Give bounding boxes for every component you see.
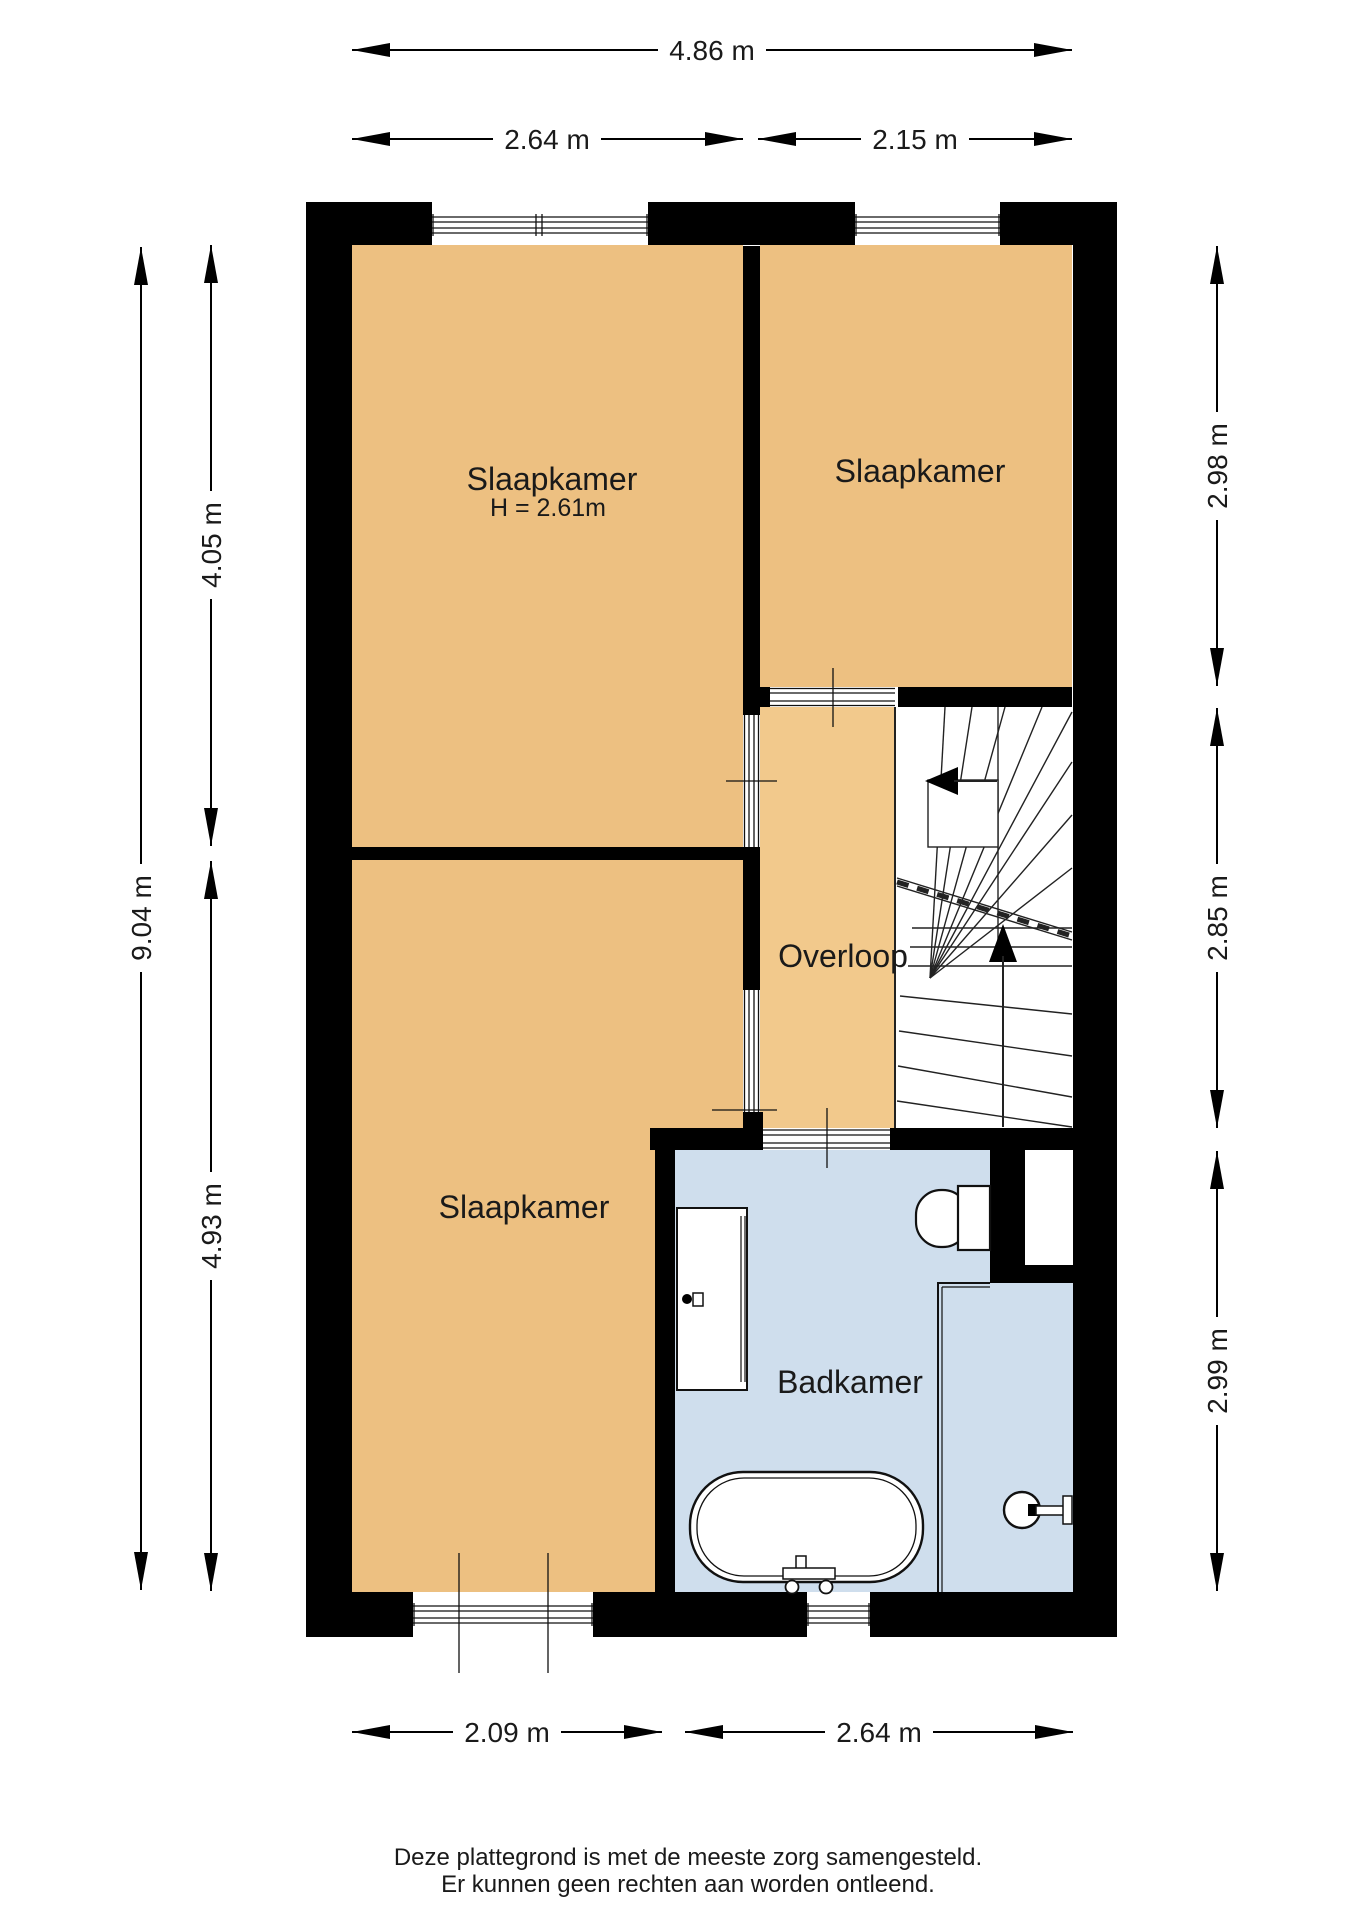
dim-label-left-total: 9.04 m <box>126 875 157 961</box>
dim-label-top-right-room: 2.15 m <box>872 124 958 155</box>
footer: Deze plattegrond is met de meeste zorg s… <box>394 1844 982 1898</box>
room-label-slaapkamer-bottom-left: Slaapkamer <box>439 1189 610 1225</box>
wall-middle-vertical-b <box>743 847 760 990</box>
dim-label-right-bottom: 2.99 m <box>1202 1328 1233 1414</box>
room-label-badkamer: Badkamer <box>777 1364 923 1400</box>
dim-label-left-lower: 4.93 m <box>196 1183 227 1269</box>
staircase <box>895 707 1072 1129</box>
bathtub <box>690 1472 923 1594</box>
room-height-label: H = 2.61m <box>490 494 606 522</box>
toilet <box>916 1186 990 1250</box>
wall-outer-top-a <box>306 202 432 245</box>
room-label-overloop: Overloop <box>778 938 908 974</box>
room-label-slaapkamer-top-left: Slaapkamer <box>467 461 638 497</box>
wall-outer-bottom-b <box>593 1592 807 1637</box>
dim-label-left-upper: 4.05 m <box>196 502 227 588</box>
wall-bedroom-divider <box>352 847 743 860</box>
room-slaapkamer-top-left-floor <box>352 245 743 847</box>
wall-toilet-nook <box>990 1150 1025 1283</box>
dim-label-right-top: 2.98 m <box>1202 423 1233 509</box>
wall-outer-top-c <box>1000 202 1117 245</box>
footer-line-1: Deze plattegrond is met de meeste zorg s… <box>394 1844 982 1871</box>
room-label-slaapkamer-top-right: Slaapkamer <box>835 453 1006 489</box>
wall-middle-vertical-a <box>743 246 760 715</box>
wall-outer-bottom-a <box>306 1592 413 1637</box>
wall-stairs-top <box>898 687 1072 707</box>
dim-label-bottom-left: 2.09 m <box>464 1717 550 1748</box>
dim-label-top-left-room: 2.64 m <box>504 124 590 155</box>
dim-label-top-total: 4.86 m <box>669 35 755 66</box>
footer-line-2: Er kunnen geen rechten aan worden ontlee… <box>441 1871 935 1898</box>
wall-outer-top-b <box>648 202 855 245</box>
floor-plan-page: Slaapkamer H = 2.61m Slaapkamer Slaapkam… <box>0 0 1358 1920</box>
floor-plan: Slaapkamer H = 2.61m Slaapkamer Slaapkam… <box>0 0 1358 1920</box>
dim-label-bottom-right: 2.64 m <box>836 1717 922 1748</box>
wall-outer-bottom-c <box>870 1592 1117 1637</box>
wall-duct-bottom <box>1025 1265 1073 1283</box>
stair-well <box>897 707 1072 1129</box>
washbasin <box>677 1208 747 1390</box>
stair-newel-box <box>928 780 998 847</box>
wall-bathroom-left <box>655 1128 675 1592</box>
dim-label-right-middle: 2.85 m <box>1202 875 1233 961</box>
duct-shaft <box>1025 1150 1073 1265</box>
wall-bathroom-top-right <box>890 1128 1073 1150</box>
room-overloop-floor <box>760 707 895 1129</box>
wall-outer-right <box>1073 202 1117 1637</box>
washbasin-faucet-icon <box>682 1294 692 1304</box>
wall-outer-left <box>306 202 352 1637</box>
